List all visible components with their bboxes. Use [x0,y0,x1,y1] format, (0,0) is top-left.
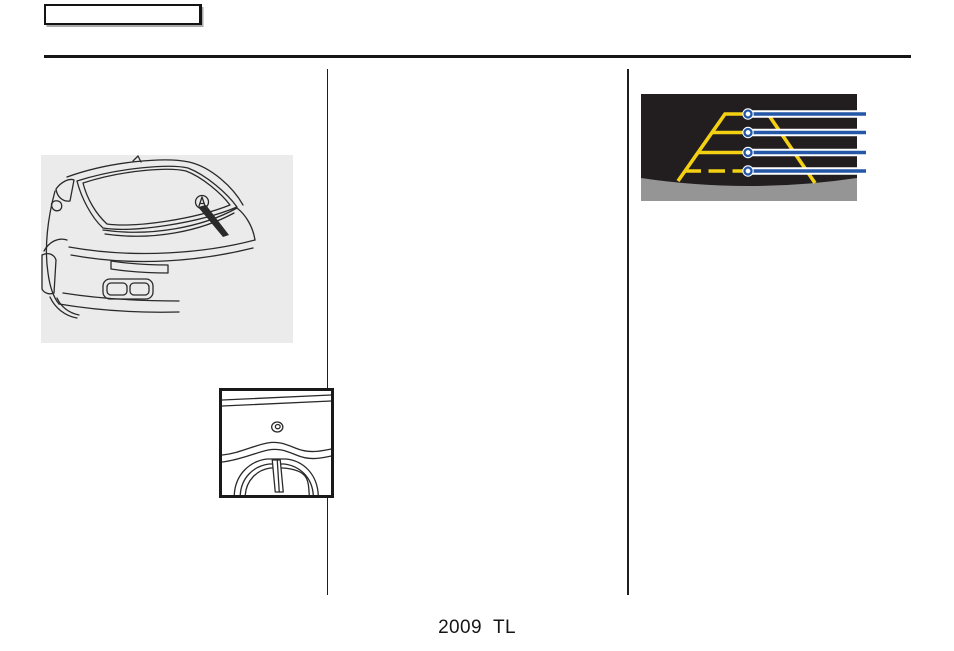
manual-page: 2009 TL [0,0,954,651]
page-footer: 2009 TL [377,617,577,639]
callout-dot-4 [745,168,752,175]
footer-model-year: 2009 TL [438,617,516,638]
top-rule [44,55,911,58]
callout-dot-2 [745,129,752,136]
camera-closeup-inset [219,388,335,498]
car-line-art [41,155,293,343]
callout-dot-3 [745,149,752,156]
camera-display-art [641,94,866,201]
rearview-camera-display-figure [641,94,866,201]
column-divider-right [627,69,629,595]
column-divider-left [327,69,329,595]
rear-camera-location-figure [41,155,293,343]
callout-dot-1 [745,111,752,118]
camera-closeup-art [222,391,332,495]
header-tab-box [44,4,202,25]
camera-callout-wedge [198,205,229,237]
